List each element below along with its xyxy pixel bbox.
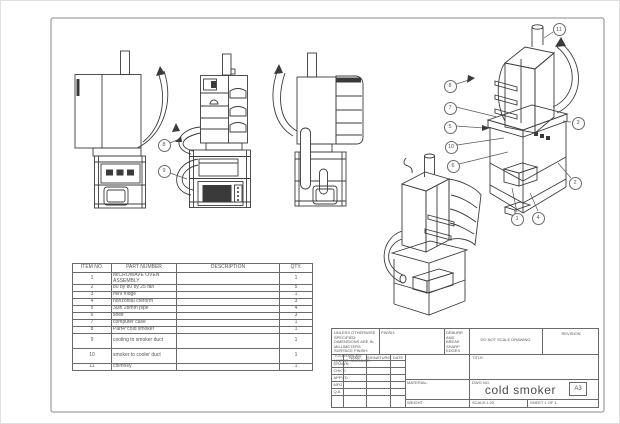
bom-cell-part: cooling to smoker duct <box>112 334 177 349</box>
bom-cell-part: mini fridge <box>112 292 177 299</box>
balloon-2: 2 <box>569 177 582 190</box>
bom-cell-qty: 1 <box>280 320 313 327</box>
bom-cell-qty: 4 <box>280 306 313 313</box>
bom-cell-part: Part4^cold smoker <box>112 327 177 334</box>
balloon-6: 6 <box>447 160 460 173</box>
bom-cell-item: 2 <box>73 285 112 292</box>
view-iso-open <box>384 154 481 315</box>
balloon-5: 5 <box>444 121 457 134</box>
bom-cell-desc <box>177 273 280 285</box>
bom-header-item: ITEM NO. <box>73 264 112 273</box>
sign-row-qa: Q.A <box>334 390 341 395</box>
bom-row: 4horizontal creform3 <box>73 299 313 306</box>
sign-header-signature: SIGNATURE <box>367 356 390 361</box>
sign-row-appvd: APPV'D <box>334 376 348 381</box>
bom-header-row: ITEM NO. PART NUMBER DESCRIPTION QTY. <box>73 264 313 273</box>
balloon-3: 3 <box>572 117 585 130</box>
bom-cell-qty: 1 <box>280 364 313 371</box>
material-label: MATERIAL: <box>407 381 428 386</box>
balloon-7: 7 <box>444 102 457 115</box>
bom-cell-item: 7 <box>73 320 112 327</box>
bom-cell-part: 80 by 80 by 25 fan <box>112 285 177 292</box>
sign-row-drawn: DRAWN <box>334 362 349 367</box>
sign-row-mfg: MFG <box>334 383 343 388</box>
bom-cell-item: 5 <box>73 306 112 313</box>
title-block: UNLESS OTHERWISE SPECIFIED: DIMENSIONS A… <box>331 328 599 408</box>
deburr-note: DEBURR AND BREAK SHARP EDGES <box>446 331 468 354</box>
bom-cell-desc <box>177 292 280 299</box>
drawing-title: cold smoker <box>474 381 567 398</box>
bom-cell-desc <box>177 364 280 371</box>
balloon-1: 1 <box>511 213 524 226</box>
bom-cell-part: horizontal creform <box>112 299 177 306</box>
bom-cell-part: shelf <box>112 313 177 320</box>
bom-row: 7computer case1 <box>73 320 313 327</box>
bom-row: 8Part4^cold smoker1 <box>73 327 313 334</box>
bom-cell-item: 6 <box>73 313 112 320</box>
bom-row: 530in 28mm pipe4 <box>73 306 313 313</box>
bom-row: 11chimney1 <box>73 364 313 371</box>
drawing-sheet: 8 9 11 8 7 5 10 6 3 2 1 4 ITEM NO. PART … <box>0 0 620 424</box>
weight-label: WEIGHT: <box>407 401 424 406</box>
bom-header-qty: QTY. <box>280 264 313 273</box>
bom-table: ITEM NO. PART NUMBER DESCRIPTION QTY. 1M… <box>72 263 313 371</box>
bom-cell-item: 9 <box>73 334 112 349</box>
balloon-9: 9 <box>158 165 171 178</box>
bom-row: 3mini fridge1 <box>73 292 313 299</box>
finish-label: FINISH: <box>381 331 395 336</box>
bom-row: 1MICROWAVE OVEN ASSEMBLY1 <box>73 273 313 285</box>
view-open-front <box>172 54 251 208</box>
bom-row: 280 by 80 by 25 fan5 <box>73 285 313 292</box>
paper-size-badge: A3 <box>569 382 587 396</box>
bom-cell-desc <box>177 285 280 292</box>
bom-cell-part: smoker to cooler duct <box>112 349 177 364</box>
balloon-8: 8 <box>158 139 171 152</box>
bom-cell-item: 11 <box>73 364 112 371</box>
bom-cell-qty: 1 <box>280 334 313 349</box>
bom-cell-qty: 1 <box>280 349 313 364</box>
bom-cell-qty: 3 <box>280 313 313 320</box>
bom-cell-item: 10 <box>73 349 112 364</box>
sheet-label: SHEET 1 OF 1 <box>530 401 557 406</box>
balloon-11: 11 <box>553 23 566 36</box>
bom-row: 10smoker to cooler duct1 <box>73 349 313 364</box>
bom-cell-item: 4 <box>73 299 112 306</box>
view-front <box>75 51 168 208</box>
sign-header-date: DATE <box>391 356 405 361</box>
bom-row: 9cooling to smoker duct1 <box>73 334 313 349</box>
bom-cell-item: 1 <box>73 273 112 285</box>
revision-label: REVISION <box>544 332 598 337</box>
bom-cell-desc <box>177 334 280 349</box>
bom-cell-desc <box>177 299 280 306</box>
bom-cell-desc <box>177 306 280 313</box>
sign-header-name: NAME <box>344 356 366 361</box>
bom-cell-desc <box>177 349 280 364</box>
scale-label: SCALE:1:20 <box>472 401 494 406</box>
bom-cell-qty: 3 <box>280 299 313 306</box>
bom-cell-item: 8 <box>73 327 112 334</box>
do-not-scale-note: DO NOT SCALE DRAWING <box>471 338 540 343</box>
bom-cell-desc <box>177 327 280 334</box>
view-side <box>273 53 363 206</box>
balloon-10: 10 <box>445 141 458 154</box>
sign-row-chkd: CHK'D <box>334 369 346 374</box>
bom-cell-part: chimney <box>112 364 177 371</box>
balloon-8b: 8 <box>444 80 457 93</box>
bom-cell-item: 3 <box>73 292 112 299</box>
bom-cell-qty: 5 <box>280 285 313 292</box>
bom-cell-part: 30in 28mm pipe <box>112 306 177 313</box>
bom-cell-desc <box>177 320 280 327</box>
view-iso-exploded <box>488 25 579 216</box>
bom-header-part: PART NUMBER <box>112 264 177 273</box>
bom-cell-qty: 1 <box>280 273 313 285</box>
bom-cell-qty: 1 <box>280 292 313 299</box>
bom-cell-part: computer case <box>112 320 177 327</box>
balloon-4: 4 <box>532 212 545 225</box>
bom-cell-part: MICROWAVE OVEN ASSEMBLY <box>112 273 177 285</box>
bom-cell-qty: 1 <box>280 327 313 334</box>
bom-row: 6shelf3 <box>73 313 313 320</box>
bom-cell-desc <box>177 313 280 320</box>
title-label: TITLE: <box>472 356 484 361</box>
bom-header-desc: DESCRIPTION <box>177 264 280 273</box>
